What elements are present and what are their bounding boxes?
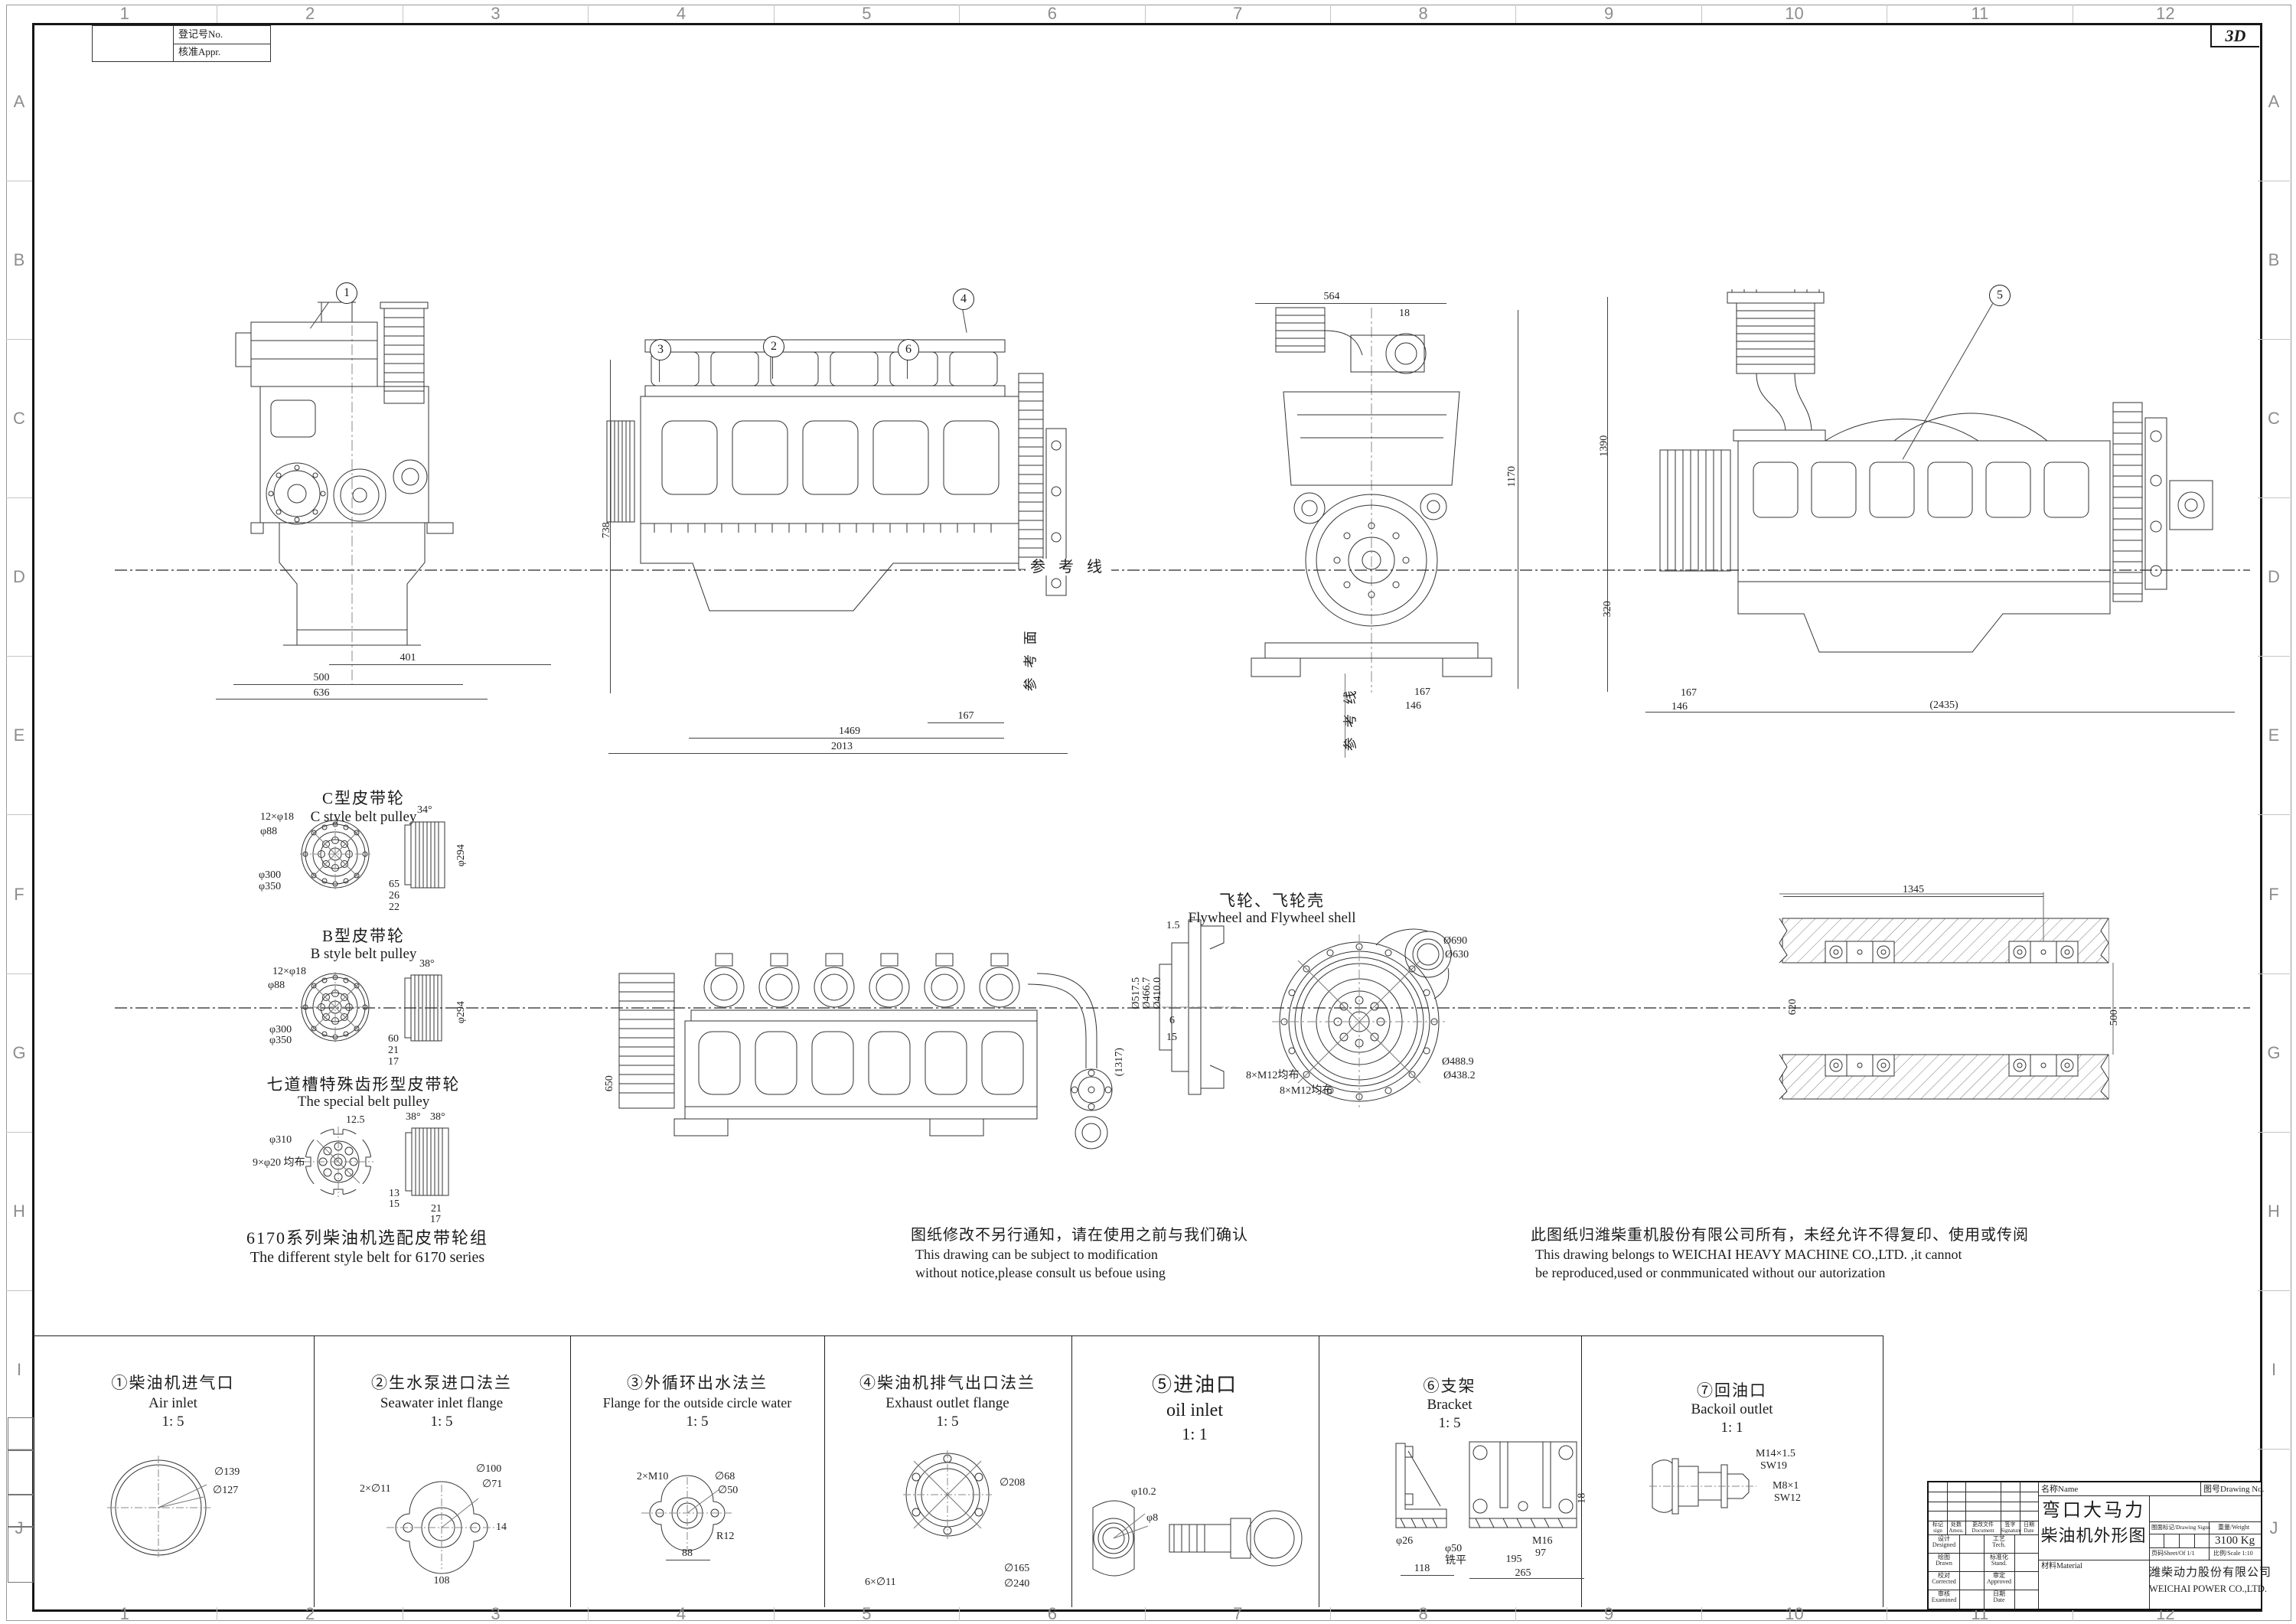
dim-label: 167 <box>1414 686 1430 698</box>
dim-label: SW19 <box>1760 1460 1787 1472</box>
balloon-leader <box>907 359 908 379</box>
grid-band-top: 123456789101112 <box>32 5 2258 23</box>
detail-title-cn: ②生水泵进口法兰 <box>371 1375 512 1392</box>
dim-label: 118 <box>1414 1563 1430 1574</box>
dim-label: φ88 <box>268 980 285 991</box>
detail-scale: 1: 1 <box>1720 1420 1743 1436</box>
grid-row-label: B <box>2258 181 2290 339</box>
balloon-exhaust: 4 <box>953 289 974 310</box>
dim-line <box>1783 896 2043 897</box>
ref-plane-label: 参 考 面 <box>1024 628 1039 691</box>
tb-sign-label: 日期Date <box>1984 1591 2014 1604</box>
dim-label: 6 <box>1169 1015 1175 1026</box>
dim-label: ∅100 <box>476 1463 501 1475</box>
note-ownership-cn: 此图纸归潍柴重机股份有限公司所有，未经允许不得复印、使用或传阅 <box>1531 1227 2029 1244</box>
registration-row-divider <box>173 44 270 44</box>
dim-label: 17 <box>388 1056 399 1068</box>
grid-row-label: A <box>6 23 32 181</box>
balloon-leader <box>659 359 660 382</box>
c-pulley-front-drawing <box>300 819 370 889</box>
front-view-drawing <box>207 302 497 693</box>
tb-sign-label: 工艺Tech. <box>1984 1536 2014 1549</box>
dim-label: 8×M12均布 <box>1246 1070 1299 1081</box>
grid-col-label: 10 <box>1701 1607 1887 1621</box>
grid-col-label: 9 <box>1515 1607 1701 1621</box>
tb-drawing-no-label: 图号Drawing No. <box>2203 1485 2264 1494</box>
registration-appr-label: 核准Appr. <box>178 47 220 57</box>
tb-signs-label: 图面标记/Drawing Signs <box>2151 1525 2210 1531</box>
grid-col-label: 4 <box>588 5 773 23</box>
side-view-drawing <box>601 331 1083 698</box>
dim-label: 15 <box>1166 1032 1177 1043</box>
detail-title-en: Seawater inlet flange <box>380 1396 503 1412</box>
dim-label: ∅165 <box>1004 1563 1029 1574</box>
dim-label: 195 <box>1506 1554 1522 1565</box>
dim-label: 2013 <box>831 741 853 752</box>
ref-line-label: 参 考 线 <box>1026 559 1111 576</box>
tb-rev-header: 标记sign <box>1929 1522 1947 1534</box>
detail-title-en: oil inlet <box>1166 1401 1223 1420</box>
dim-label: 14 <box>496 1521 507 1533</box>
dim-label: 8×M12均布 <box>1280 1085 1332 1097</box>
dim-label: 22 <box>389 902 400 913</box>
tb-scale-label: 比例/Scale 1:10 <box>2213 1551 2253 1557</box>
dim-label: 401 <box>400 652 416 664</box>
c-pulley-title-cn: C型皮带轮 <box>322 790 405 807</box>
dim-label: φ26 <box>1396 1535 1413 1547</box>
bottom-side-view-drawing <box>608 940 1121 1166</box>
dim-label: 1345 <box>1903 884 1924 895</box>
detail-title-cn: ⑦回油口 <box>1697 1382 1767 1400</box>
balloon-bracket: 6 <box>898 339 919 360</box>
registration-no-label: 登记号No. <box>178 29 223 40</box>
detail-air-inlet-drawing <box>107 1454 210 1557</box>
detail-title-en: Air inlet <box>148 1396 197 1412</box>
note-modification-en1: This drawing can be subject to modificat… <box>915 1247 1158 1263</box>
dim-line <box>329 664 551 665</box>
dim-label: φ10.2 <box>1131 1486 1156 1498</box>
tb-sign-label: 审定Approved <box>1984 1573 2014 1586</box>
tb-sign-label: 校对Corrected <box>1929 1573 1959 1586</box>
dim-label: φ50 <box>1445 1543 1462 1554</box>
dim-label: M8×1 <box>1773 1480 1799 1492</box>
detail-scale: 1: 5 <box>1438 1416 1460 1432</box>
detail-title-en: Bracket <box>1427 1397 1472 1414</box>
dim-line <box>1645 712 2235 713</box>
dim-label: Ø690 <box>1443 935 1467 947</box>
grid-col-label: 3 <box>403 5 588 23</box>
detail-title-cn: ⑥支架 <box>1424 1378 1476 1395</box>
detail-strip-divider <box>824 1335 825 1607</box>
grid-row-label: E <box>6 656 32 814</box>
grid-row-label: I <box>2258 1290 2290 1449</box>
grid-row-label: B <box>6 181 32 339</box>
grid-col-label: 4 <box>588 1607 773 1621</box>
dim-label: R12 <box>716 1531 734 1542</box>
balloon-number: 2 <box>771 340 777 354</box>
tb-label: Signature <box>2001 1528 2021 1534</box>
dim-line <box>1255 303 1446 304</box>
dim-line <box>216 699 488 699</box>
dim-label: φ294 <box>455 844 467 866</box>
tb-rev-header: 更改文件Document <box>1965 1522 2001 1534</box>
dim-label: 1170 <box>1506 466 1518 487</box>
dim-label: 167 <box>1681 687 1697 699</box>
tb-line <box>2149 1547 2261 1548</box>
detail-bracket-drawing <box>1393 1439 1584 1531</box>
tb-label: Designed <box>1932 1541 1955 1548</box>
tb-line <box>2038 1495 2261 1496</box>
detail-backoil-drawing <box>1649 1453 1756 1521</box>
tb-sign-label: 设计Designed <box>1929 1536 1959 1549</box>
detail-title-cn: ①柴油机进气口 <box>112 1375 235 1392</box>
dim-line <box>1469 1578 1584 1579</box>
tb-label: Drawn <box>1936 1560 1952 1567</box>
tb-sign-label: 标准化Stand. <box>1984 1554 2014 1567</box>
balloon-number: 4 <box>960 292 967 306</box>
balloon-number: 3 <box>657 343 664 357</box>
dim-label: 1390 <box>1598 435 1609 457</box>
archive-box <box>8 1526 34 1583</box>
dim-label: 2×∅11 <box>360 1483 391 1495</box>
dim-label: 167 <box>958 710 974 722</box>
grid-col-label: 9 <box>1515 5 1701 23</box>
drawing-sheet: 123456789101112 123456789101112 ABCDEFGH… <box>0 0 2296 1624</box>
tb-line <box>2149 1521 2261 1522</box>
dim-label: 34° <box>417 804 432 816</box>
grid-col-label: 8 <box>1330 5 1515 23</box>
pulley-footer-cn: 6170系列柴油机选配皮带轮组 <box>246 1229 488 1247</box>
tb-weight-value: 3100 Kg <box>2215 1534 2255 1547</box>
tb-weight-label: 重量/Weight <box>2218 1525 2249 1531</box>
special-pulley-front-drawing <box>303 1127 373 1197</box>
grid-col-label: 1 <box>32 5 217 23</box>
dim-label: Ø630 <box>1445 949 1469 960</box>
dim-label: 17 <box>430 1214 441 1225</box>
grid-row-label: H <box>2258 1132 2290 1290</box>
dim-label: 12.5 <box>346 1114 365 1126</box>
grid-col-label: 10 <box>1701 5 1887 23</box>
balloon-seawater: 2 <box>763 336 784 357</box>
tb-sheet-label: 页码Sheet/Of 1/1 <box>2151 1551 2195 1557</box>
right-view-drawing <box>1642 289 2231 693</box>
flywheel-title-cn: 飞轮、飞轮壳 <box>1219 892 1325 910</box>
detail-strip-divider <box>1319 1335 1319 1607</box>
dim-line <box>666 1560 710 1560</box>
tb-rev-header: 签字Signature <box>2001 1522 2020 1534</box>
dim-line <box>233 684 463 685</box>
dim-label: Ø410.0 <box>1152 977 1163 1009</box>
3d-marker: 3D <box>2226 26 2246 46</box>
detail-seawater-flange-drawing <box>386 1485 497 1569</box>
dim-label: 146 <box>1405 700 1421 712</box>
dim-label: M16 <box>1532 1535 1552 1547</box>
dim-label: 12×φ18 <box>272 966 306 977</box>
dim-label: (2435) <box>1929 699 1958 711</box>
tb-label: Corrected <box>1932 1578 1956 1585</box>
dim-label: φ8 <box>1146 1512 1158 1524</box>
grid-row-label: G <box>6 973 32 1132</box>
detail-title-cn: ③外循环出水法兰 <box>627 1375 768 1392</box>
tb-rev-header: 处数Amou. <box>1947 1522 1965 1534</box>
dim-label: 铣平 <box>1445 1555 1466 1567</box>
dim-label: ∅71 <box>482 1479 502 1490</box>
grid-row-label: H <box>6 1132 32 1290</box>
dim-label: M14×1.5 <box>1756 1448 1795 1459</box>
b-pulley-title-cn: B型皮带轮 <box>322 928 405 945</box>
grid-col-label: 5 <box>774 5 959 23</box>
dim-label: 320 <box>1602 601 1613 617</box>
special-pulley-title-cn: 七道槽特殊齿形型皮带轮 <box>267 1076 461 1094</box>
grid-band-bottom: 123456789101112 <box>32 1607 2258 1621</box>
detail-strip-topline <box>32 1335 1883 1336</box>
grid-col-label: 7 <box>1145 5 1330 23</box>
dim-label: SW12 <box>1774 1492 1801 1504</box>
3d-marker-box: 3D <box>2210 25 2259 47</box>
dim-label: ∅139 <box>214 1466 240 1478</box>
dim-label: 500 <box>2108 1009 2120 1026</box>
tb-label: Document <box>1971 1528 1994 1534</box>
dim-label: Ø438.2 <box>1443 1070 1476 1081</box>
dim-label: 18 <box>1399 308 1410 319</box>
detail-oil-inlet-drawing <box>1085 1492 1307 1584</box>
tb-label: Approved <box>1987 1578 2011 1585</box>
tb-label: Tech. <box>1992 1541 2005 1548</box>
tb-line <box>2164 1534 2164 1547</box>
shaft-detail-drawing <box>1779 915 2254 1103</box>
ref-line-extension <box>1345 673 1345 758</box>
tb-company-cn: 潍柴动力股份有限公司 <box>2149 1567 2261 1580</box>
dim-label: 26 <box>389 890 400 902</box>
balloon-number: 5 <box>1997 289 2003 302</box>
detail-title-en: Backoil outlet <box>1691 1402 1773 1418</box>
balloon-number: 6 <box>905 343 912 357</box>
tb-line <box>1959 1534 1960 1609</box>
detail-scale: 1: 5 <box>161 1414 184 1430</box>
grid-col-label: 7 <box>1145 1607 1330 1621</box>
grid-band-right: ABCDEFGHIJ <box>2258 23 2290 1607</box>
tb-material-label: 材料Material <box>2041 1562 2082 1570</box>
grid-row-label: G <box>2258 973 2290 1132</box>
tb-line <box>2038 1560 2261 1560</box>
dim-line <box>610 360 611 693</box>
pulley-footer-en: The different style belt for 6170 series <box>250 1249 484 1266</box>
grid-col-label: 2 <box>217 1607 402 1621</box>
grid-col-label: 12 <box>2073 5 2258 23</box>
balloon-air-inlet: 1 <box>336 282 357 304</box>
dim-label: ∅127 <box>213 1485 238 1496</box>
dim-label: 38° <box>419 958 435 970</box>
dim-line <box>608 753 1068 754</box>
detail-strip-divider <box>570 1335 571 1607</box>
dim-label: 650 <box>604 1075 615 1091</box>
archive-box <box>8 1494 34 1528</box>
dim-label: ∅68 <box>715 1471 735 1482</box>
grid-row-label: D <box>6 497 32 656</box>
detail-title-en: Flange for the outside circle water <box>603 1396 791 1411</box>
dim-label: 108 <box>434 1575 450 1586</box>
dim-label: φ350 <box>269 1035 292 1046</box>
tb-line <box>2014 1534 2015 1609</box>
special-pulley-title-en: The special belt pulley <box>298 1094 430 1110</box>
special-pulley-side-drawing <box>404 1127 455 1197</box>
dim-label: 500 <box>314 672 330 683</box>
detail-title-cn: ④柴油机排气出口法兰 <box>859 1375 1035 1392</box>
b-pulley-title-en: B style belt pulley <box>311 947 417 963</box>
b-pulley-front-drawing <box>300 972 370 1042</box>
dim-label: 636 <box>314 687 330 699</box>
grid-row-label: C <box>6 339 32 497</box>
tb-sign-label: 绘图Drawn <box>1929 1554 1959 1567</box>
dim-label: 6×∅11 <box>865 1577 896 1588</box>
grid-band-left: ABCDEFGHIJ <box>6 23 32 1607</box>
tb-drawing-name-line1: 弯口大马力 <box>2038 1501 2149 1521</box>
tb-rev-header: 日期Date <box>2020 1522 2038 1534</box>
dim-label: φ350 <box>259 881 281 892</box>
detail-scale: 1: 1 <box>1182 1425 1208 1443</box>
dim-label: ∅50 <box>718 1485 738 1496</box>
tb-line <box>1929 1502 2038 1502</box>
note-ownership-en2: be reproduced,used or conmmunicated with… <box>1535 1266 1885 1281</box>
grid-row-label: A <box>2258 23 2290 181</box>
tb-label: Examined <box>1932 1596 1956 1603</box>
tb-line <box>2194 1534 2195 1547</box>
grid-col-label: 2 <box>217 5 402 23</box>
archive-box <box>8 1450 34 1495</box>
dim-label: 15 <box>389 1198 400 1210</box>
dim-line <box>1607 297 1608 692</box>
tb-line <box>1929 1492 2038 1492</box>
title-block: 标记sign 处数Amou. 更改文件Document 签字Signature … <box>1927 1481 2262 1610</box>
dim-label: 12×φ18 <box>260 811 294 823</box>
dim-label: ∅208 <box>1000 1477 1025 1489</box>
dim-label: 2×M10 <box>637 1471 668 1482</box>
tb-label: sign <box>1933 1528 1942 1534</box>
balloon-oil-inlet: 5 <box>1989 285 2011 306</box>
detail-strip-divider <box>1071 1335 1072 1607</box>
tb-sign-label: 审核Examined <box>1929 1591 1959 1604</box>
rear-view-drawing <box>1236 308 1508 693</box>
tb-company: 潍柴动力股份有限公司 WEICHAI POWER CO.,LTD. <box>2149 1567 2261 1594</box>
tb-line <box>2200 1482 2201 1495</box>
dim-label: ∅240 <box>1004 1578 1029 1590</box>
grid-col-label: 8 <box>1330 1607 1515 1621</box>
detail-strip-divider <box>1883 1335 1883 1607</box>
dim-label: 97 <box>1535 1547 1546 1559</box>
balloon-number: 1 <box>344 286 350 300</box>
dim-label: φ88 <box>260 826 277 837</box>
c-pulley-side-drawing <box>403 820 451 889</box>
flywheel-title-en: Flywheel and Flywheel shell <box>1189 911 1356 927</box>
dim-label: 9×φ20 均布 <box>253 1157 305 1169</box>
grid-col-label: 1 <box>32 1607 217 1621</box>
dim-label: 620 <box>1787 999 1799 1015</box>
dim-label: 38° <box>430 1111 445 1123</box>
tb-drawing-name: 弯口大马力 柴油机外形图 <box>2038 1501 2149 1546</box>
detail-title-cn: ⑤进油口 <box>1152 1375 1238 1397</box>
grid-col-label: 11 <box>1887 5 2072 23</box>
tb-line <box>1929 1511 2038 1511</box>
detail-scale: 1: 5 <box>686 1414 708 1430</box>
detail-scale: 1: 5 <box>430 1414 452 1430</box>
detail-scale: 1: 5 <box>936 1414 958 1430</box>
tb-label: Stand. <box>1991 1560 2007 1567</box>
dim-label: 21 <box>388 1045 399 1056</box>
dim-label: 564 <box>1324 291 1340 302</box>
b-pulley-side-drawing <box>403 973 451 1042</box>
tb-line <box>2179 1534 2180 1547</box>
grid-row-label: C <box>2258 339 2290 497</box>
tb-label: Date <box>2024 1528 2033 1534</box>
grid-col-label: 6 <box>959 1607 1144 1621</box>
tb-label: Amou. <box>1949 1528 1963 1534</box>
dim-label: Ø488.9 <box>1442 1056 1474 1068</box>
ref-line-label-rotated: 参 考 线 <box>1344 687 1359 751</box>
dim-label: 88 <box>682 1547 693 1559</box>
dim-line <box>928 722 1004 723</box>
grid-col-label: 6 <box>959 5 1144 23</box>
detail-title-en: Exhaust outlet flange <box>885 1396 1009 1412</box>
dim-label: 60 <box>388 1033 399 1045</box>
grid-row-label: F <box>2258 814 2290 973</box>
dim-label: φ294 <box>455 1001 467 1023</box>
grid-col-label: 5 <box>774 1607 959 1621</box>
dim-label: 1469 <box>839 726 860 737</box>
tb-drawing-name-line2: 柴油机外形图 <box>2038 1527 2149 1545</box>
note-modification-en2: without notice,please consult us befoue … <box>915 1266 1166 1281</box>
balloon-outside-water: 3 <box>650 339 671 360</box>
grid-row-label: F <box>6 814 32 973</box>
dim-label: 1.5 <box>1166 920 1180 931</box>
note-ownership-en1: This drawing belongs to WEICHAI HEAVY MA… <box>1535 1247 1962 1263</box>
dim-label: (1317) <box>1114 1048 1125 1076</box>
dim-label: φ300 <box>259 869 281 881</box>
grid-row-label: E <box>2258 656 2290 814</box>
dim-line <box>1401 1575 1454 1576</box>
dim-line <box>689 738 1004 739</box>
dim-label: 65 <box>389 879 400 890</box>
note-modification-cn: 图纸修改不另行通知，请在使用之前与我们确认 <box>911 1227 1248 1244</box>
dim-line <box>1518 310 1518 689</box>
detail-strip-divider <box>314 1335 315 1607</box>
dim-label: 18 <box>1576 1493 1587 1504</box>
registration-box: 登记号No. 核准Appr. <box>92 25 271 62</box>
tb-company-en: WEICHAI POWER CO.,LTD. <box>2149 1584 2261 1595</box>
dim-label: 38° <box>406 1111 421 1123</box>
balloon-leader <box>772 356 773 379</box>
archive-box <box>8 1417 34 1451</box>
tb-name-label: 名称Name <box>2041 1485 2078 1494</box>
dim-label: φ310 <box>269 1134 292 1146</box>
grid-col-label: 3 <box>403 1607 588 1621</box>
tb-label: Date <box>1993 1596 2004 1603</box>
detail-exhaust-flange-drawing <box>903 1450 992 1539</box>
grid-row-label: D <box>2258 497 2290 656</box>
